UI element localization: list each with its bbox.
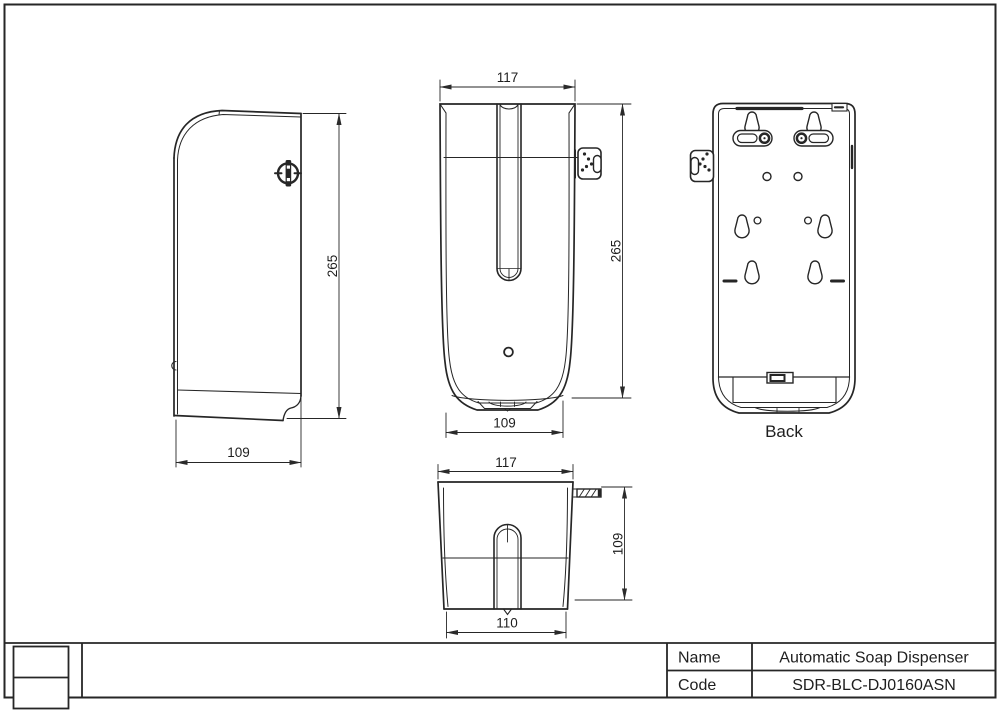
lock-bracket-back xyxy=(691,151,714,182)
technical-drawing: 265 109 xyxy=(0,0,1000,711)
sight-window-slot xyxy=(497,104,521,281)
side-height-dim-label: 265 xyxy=(325,255,340,278)
name-label: Name xyxy=(678,650,721,667)
bottom-bottom-width-dimension: 110 xyxy=(447,612,567,638)
bottom-view: 117 109 110 xyxy=(438,455,632,638)
spout-stub xyxy=(574,489,602,497)
bottom-top-width-dimension: 117 xyxy=(438,455,573,479)
bottom-bottom-width-dim-label: 110 xyxy=(496,616,518,631)
keyhole-slot xyxy=(818,215,832,238)
front-height-dim-label: 265 xyxy=(609,240,624,263)
bottom-top-width-dim-label: 117 xyxy=(495,455,517,470)
title-block: Name Automatic Soap Dispenser Code SDR-B… xyxy=(5,643,996,709)
back-view-caption: Back xyxy=(765,422,803,441)
code-label: Code xyxy=(678,677,716,694)
front-top-width-dimension: 117 xyxy=(440,70,575,101)
screw-hole xyxy=(805,217,812,224)
side-width-dimension: 109 xyxy=(176,398,301,467)
front-bottom-width-dim-label: 109 xyxy=(493,416,516,431)
bottom-depth-dimension: 109 xyxy=(575,487,632,600)
name-value: Automatic Soap Dispenser xyxy=(779,650,969,667)
keyhole-slot xyxy=(808,261,822,284)
mount-slot-pair-left xyxy=(733,131,772,147)
mount-slot-pair-right xyxy=(794,131,833,147)
lock-icon xyxy=(275,160,301,187)
side-view: 265 109 xyxy=(172,111,346,468)
drawing-sheet: 265 109 xyxy=(0,0,1000,711)
screw-hole xyxy=(794,173,802,181)
back-view: Back xyxy=(691,104,856,442)
screw-hole xyxy=(763,173,771,181)
front-view: 117 265 109 xyxy=(440,70,631,438)
indicator-led xyxy=(504,348,513,357)
keyhole-slot xyxy=(745,261,759,284)
bottom-slot xyxy=(494,525,521,615)
lock-bracket-front xyxy=(576,148,602,179)
keyhole-slot xyxy=(735,215,749,238)
code-value: SDR-BLC-DJ0160ASN xyxy=(792,677,956,694)
front-top-width-dim-label: 117 xyxy=(497,70,519,85)
bottom-depth-dim-label: 109 xyxy=(611,533,626,556)
revision-box xyxy=(14,647,69,709)
screw-hole xyxy=(754,217,761,224)
side-width-dim-label: 109 xyxy=(227,445,250,460)
side-height-dimension: 265 xyxy=(287,114,346,419)
